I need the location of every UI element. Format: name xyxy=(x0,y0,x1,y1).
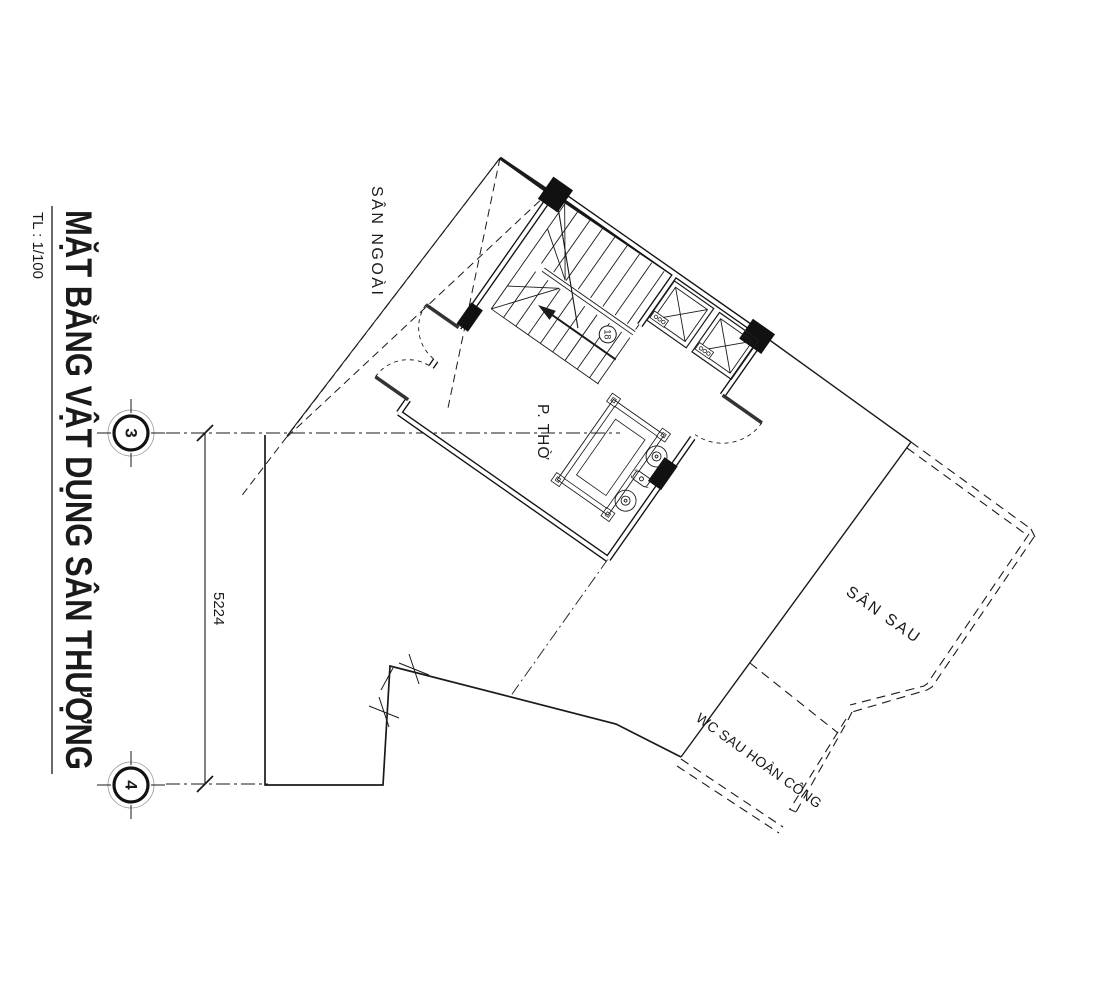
door-leaf xyxy=(375,377,408,400)
door-swing-arc xyxy=(375,344,431,400)
backyard-dashed-boundary xyxy=(677,442,1035,833)
title-block: MẶT BẰNG VẬT DỤNG SÂN THƯỢNG TL : 1/100 xyxy=(29,206,100,774)
door-swing-arc xyxy=(403,305,459,361)
doors xyxy=(375,226,762,573)
label-san-ngoai: SÂN NGOÀI xyxy=(368,186,387,297)
stair-arrow-head-icon xyxy=(535,301,556,320)
scale-label: TL : 1/100 xyxy=(29,212,46,279)
incense-burner xyxy=(632,470,652,488)
wc-inner-dashed-wall xyxy=(750,663,838,733)
door-leaf xyxy=(723,395,762,423)
floor-plan-drawing: 18 xyxy=(0,0,1100,1000)
survey-cross-icon xyxy=(369,697,399,727)
boundary-backyard-top xyxy=(764,336,911,442)
boundary-notch-tick xyxy=(381,668,393,690)
grid-marker-3: 3 xyxy=(122,428,141,437)
property-boundary xyxy=(265,158,911,785)
grid-bubble-4: 4 xyxy=(97,751,165,819)
grid-marker-4: 4 xyxy=(122,780,141,790)
label-wc-sau-hoan-cong: WC SAU HOÀN CÔNG xyxy=(693,709,825,811)
stair-break-line xyxy=(504,201,630,328)
plan-title: MẶT BẰNG VẬT DỤNG SÂN THƯỢNG xyxy=(58,210,100,770)
staircase: 18 xyxy=(485,198,673,384)
grid-bubble-3: 3 xyxy=(97,399,165,467)
label-san-sau: SÂN SAU xyxy=(843,582,926,648)
dimension-5224: 5224 xyxy=(210,592,227,625)
label-p-tho: P. THỜ xyxy=(534,404,551,461)
awning-dashed-lines xyxy=(240,158,547,498)
door-swing-arc xyxy=(695,395,762,462)
door-leaf xyxy=(426,305,459,328)
centerline-extension xyxy=(510,559,608,697)
offering-plate xyxy=(611,486,640,515)
building-plan: 18 xyxy=(366,159,809,587)
floor-plan-page: 18 xyxy=(0,0,1100,1000)
building-walls xyxy=(399,190,764,559)
stair-step-count: 18 xyxy=(603,329,613,339)
